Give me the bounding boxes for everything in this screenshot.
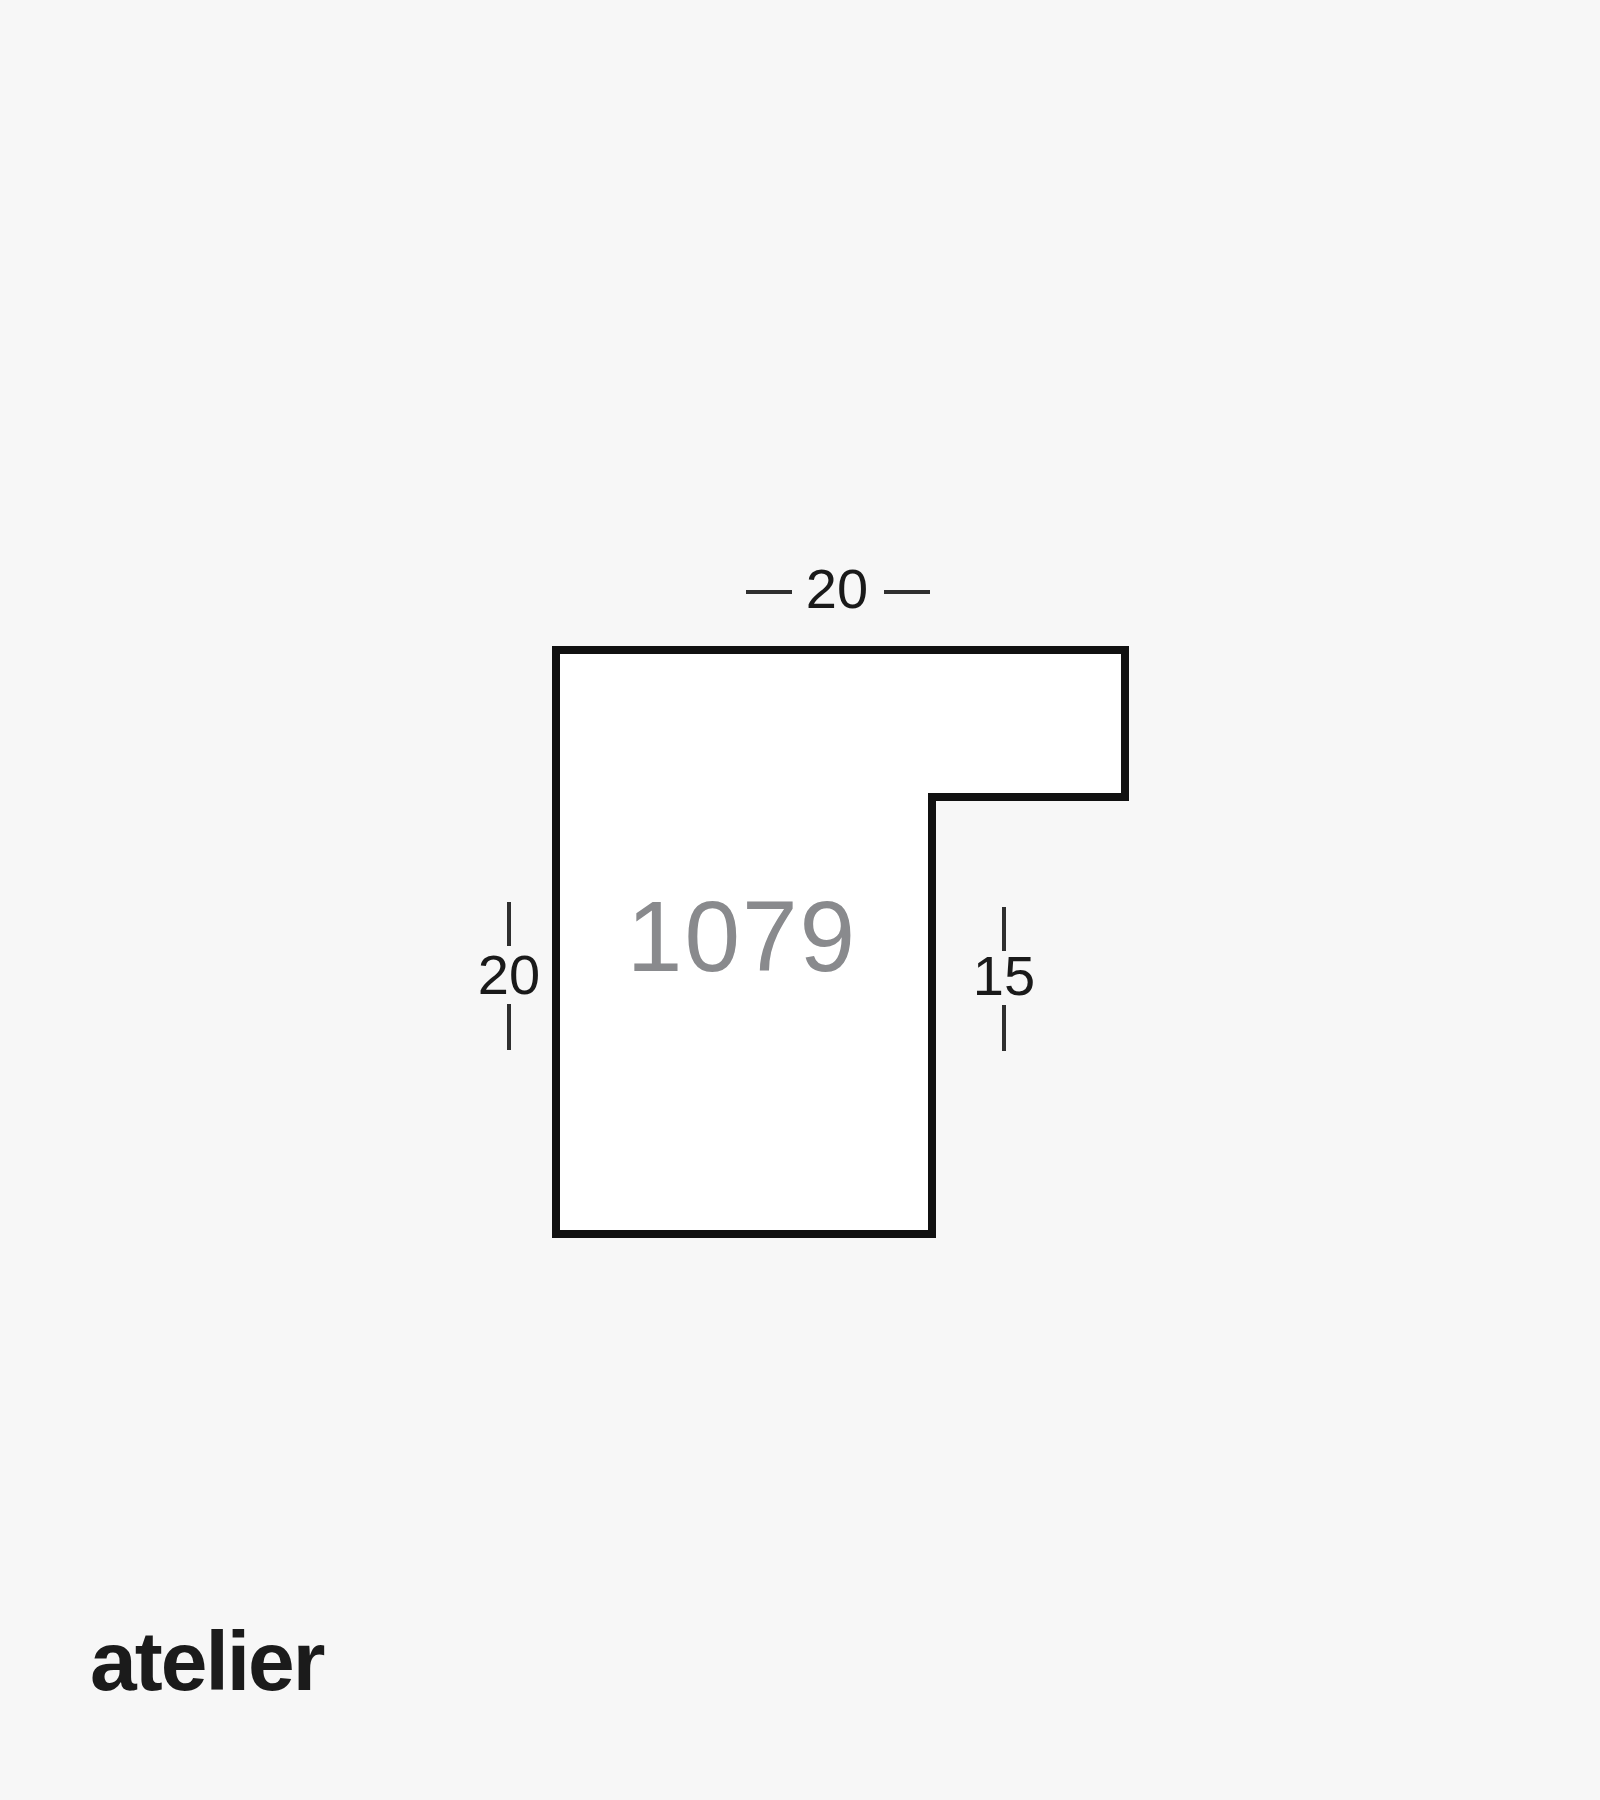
brand-wordmark: atelier: [90, 1619, 324, 1703]
dimension-top-label: 20: [806, 561, 868, 617]
dimension-left-label: 20: [478, 947, 540, 1003]
page-canvas: 20 20 15 1079 atelier: [0, 0, 1600, 1800]
dimension-right-label: 15: [973, 948, 1035, 1004]
profile-number: 1079: [627, 886, 857, 986]
